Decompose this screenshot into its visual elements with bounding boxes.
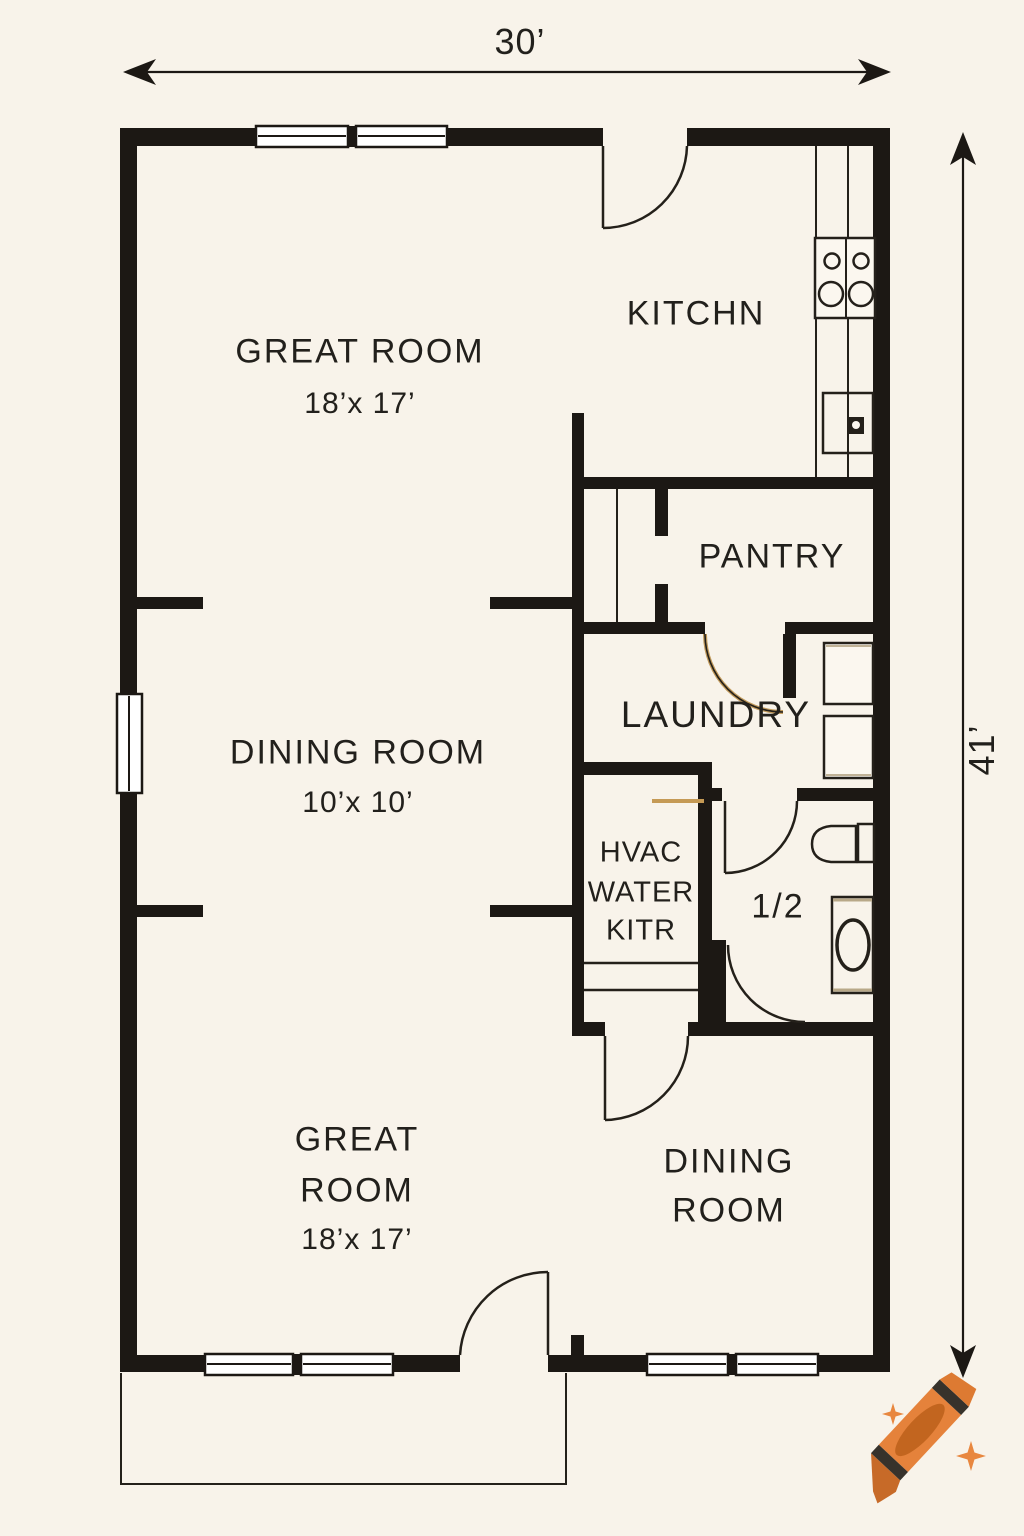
dining-room-bottom-label-line2: ROOM (672, 1192, 786, 1231)
great-room-bottom-label-line1: GREAT (295, 1121, 420, 1160)
half-bath-upper-door (725, 801, 797, 873)
kitchen-label: KITCHN (627, 295, 766, 334)
half-bath-label: 1/2 (751, 888, 804, 927)
great-room-bottom-size: 18’x 17’ (301, 1223, 412, 1257)
great-room-top-label: GREAT ROOM (235, 333, 484, 372)
porch-outline (121, 1373, 566, 1484)
utility-closet-label-line1: HVAC (600, 837, 682, 870)
dining-room-middle-size: 10’x 10’ (302, 786, 413, 820)
dryer-icon (824, 716, 873, 778)
kitchen-entry-door (603, 146, 687, 228)
utility-closet-label-line3: KITR (606, 915, 676, 948)
height-dimension-label: 41’ (961, 724, 1003, 775)
half-bath-lower-door (728, 945, 805, 1022)
stove-icon (815, 238, 875, 318)
floor-plan: 30’ 41’ GREAT ROOM 18’x 17’ KITCHN PANTR… (0, 0, 1024, 1536)
crayon-icon (849, 1366, 985, 1507)
toilet-icon (812, 824, 874, 862)
floorplan-drawing (0, 0, 1024, 1536)
washer-icon (824, 643, 873, 704)
great-room-top-size: 18’x 17’ (304, 387, 415, 421)
great-room-bottom-label-line2: ROOM (300, 1172, 414, 1211)
window-bottom-left (205, 1354, 393, 1375)
window-top (256, 126, 447, 147)
vanity-sink-icon (832, 897, 873, 993)
dining-room-bottom-label-line1: DINING (664, 1143, 795, 1182)
front-entry-door (460, 1272, 548, 1355)
pantry-label: PANTRY (699, 538, 846, 577)
utility-closet-label-line2: WATER (588, 877, 695, 910)
laundry-label: LAUNDRY (621, 694, 811, 736)
window-left (117, 694, 142, 793)
window-bottom-right (647, 1354, 818, 1375)
width-dimension-label: 30’ (494, 21, 545, 63)
dining-room-middle-label: DINING ROOM (230, 734, 486, 773)
dining-room-door (605, 1036, 688, 1120)
